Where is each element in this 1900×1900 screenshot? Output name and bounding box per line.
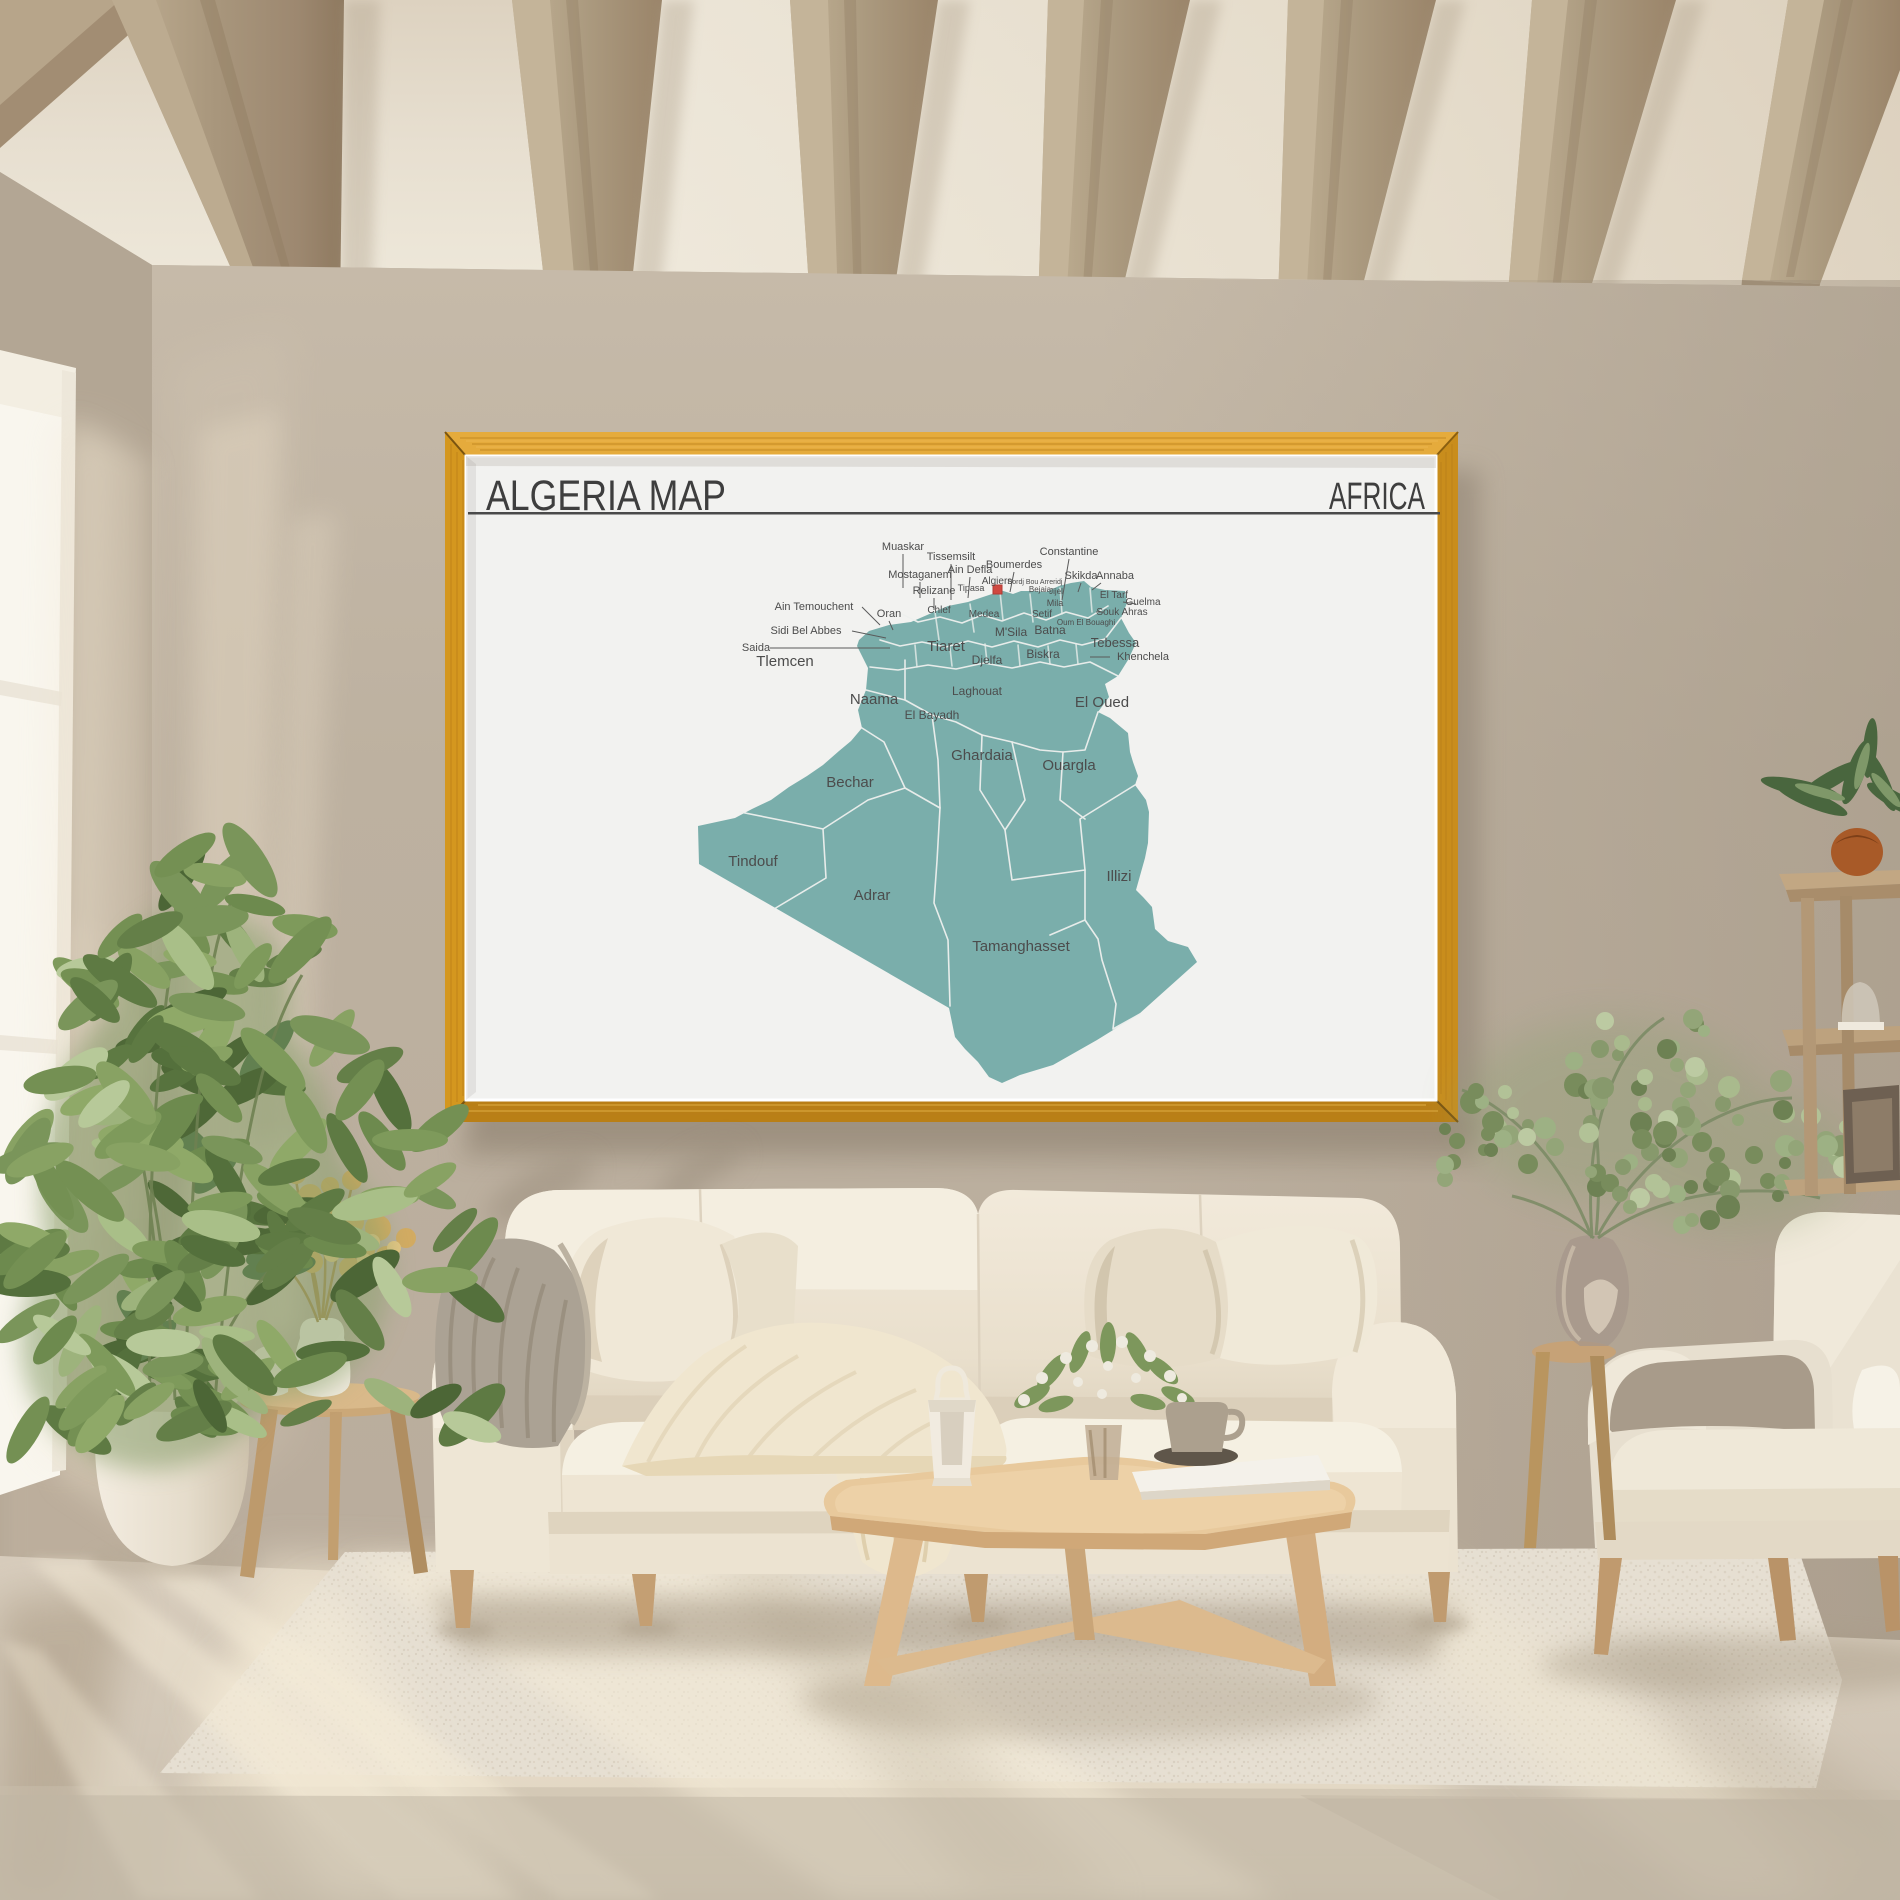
svg-text:Relizane: Relizane	[913, 585, 956, 597]
svg-text:Boumerdes: Boumerdes	[986, 559, 1043, 571]
svg-text:Naama: Naama	[850, 691, 899, 708]
svg-text:Illizi: Illizi	[1107, 868, 1132, 885]
svg-text:Adrar: Adrar	[854, 887, 891, 904]
svg-text:Souk Ahras: Souk Ahras	[1096, 607, 1147, 618]
svg-text:Bordj Bou Arreridj: Bordj Bou Arreridj	[1008, 579, 1063, 586]
svg-text:El Oued: El Oued	[1075, 694, 1129, 711]
svg-text:Oum El Bouaghi: Oum El Bouaghi	[1057, 618, 1115, 627]
svg-text:Biskra: Biskra	[1026, 647, 1060, 661]
svg-text:Tebessa: Tebessa	[1091, 635, 1140, 650]
svg-text:Tamanghasset: Tamanghasset	[972, 938, 1070, 955]
svg-text:Tipasa: Tipasa	[958, 583, 985, 593]
svg-text:Tiaret: Tiaret	[927, 638, 966, 655]
svg-text:Ouargla: Ouargla	[1042, 757, 1096, 774]
svg-text:Tindouf: Tindouf	[728, 853, 778, 870]
svg-text:Khenchela: Khenchela	[1117, 651, 1170, 663]
svg-text:Saida: Saida	[742, 642, 771, 654]
svg-text:Laghouat: Laghouat	[952, 684, 1003, 698]
svg-text:Mila: Mila	[1047, 598, 1064, 608]
svg-text:Bechar: Bechar	[826, 774, 874, 791]
svg-text:Djelfa: Djelfa	[972, 653, 1003, 667]
svg-text:Ghardaia: Ghardaia	[951, 747, 1013, 764]
svg-text:Ain Temouchent: Ain Temouchent	[775, 601, 854, 613]
svg-text:Mostaganem: Mostaganem	[888, 569, 952, 581]
svg-text:Constantine: Constantine	[1040, 546, 1099, 558]
svg-text:Tlemcen: Tlemcen	[756, 653, 814, 670]
svg-text:El Bayadh: El Bayadh	[905, 708, 960, 722]
svg-text:Skikda: Skikda	[1064, 570, 1098, 582]
svg-text:Tissemsilt: Tissemsilt	[927, 551, 975, 563]
svg-text:Sidi Bel Abbes: Sidi Bel Abbes	[771, 625, 842, 637]
svg-text:AFRICA: AFRICA	[1329, 476, 1425, 518]
svg-text:M'Sila: M'Sila	[995, 625, 1028, 639]
svg-text:El Tarf: El Tarf	[1100, 590, 1128, 601]
svg-text:Medea: Medea	[969, 609, 1000, 620]
svg-text:Muaskar: Muaskar	[882, 541, 925, 553]
svg-text:Annaba: Annaba	[1096, 570, 1135, 582]
svg-text:Setif: Setif	[1032, 609, 1052, 620]
svg-text:Jijel: Jijel	[1049, 587, 1063, 596]
svg-text:Chlef: Chlef	[927, 605, 951, 616]
svg-text:Oran: Oran	[877, 608, 901, 620]
